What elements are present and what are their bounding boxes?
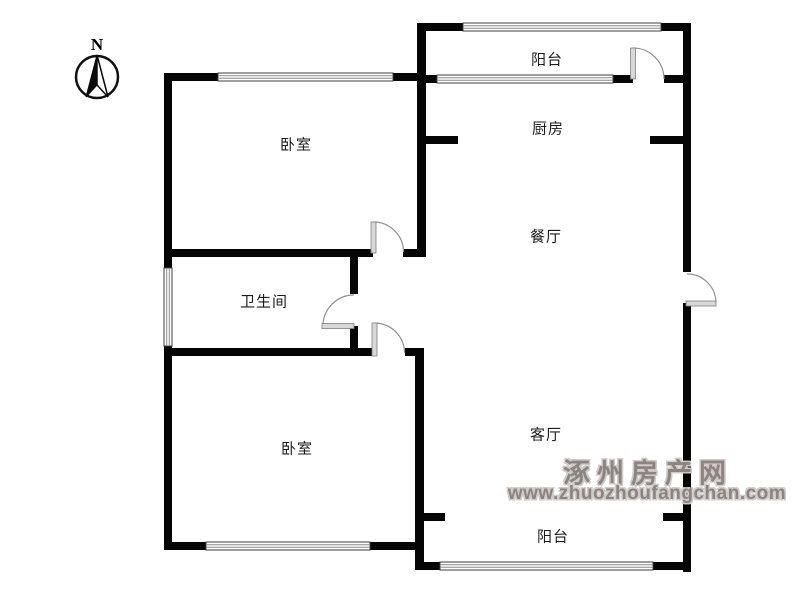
floorplan-drawing bbox=[0, 0, 800, 600]
wall bbox=[164, 73, 172, 268]
room-label-kitchen: 厨房 bbox=[532, 118, 564, 139]
wall bbox=[425, 75, 437, 83]
wall bbox=[683, 303, 691, 572]
doors bbox=[322, 48, 716, 356]
compass-north-label: N bbox=[91, 35, 103, 55]
balcony-door bbox=[631, 48, 665, 79]
room-label-bedroom-top: 卧室 bbox=[280, 134, 312, 155]
window bbox=[437, 75, 613, 83]
window bbox=[440, 562, 653, 570]
room-label-balcony-top: 阳台 bbox=[531, 49, 563, 70]
room-label-balcony-bottom: 阳台 bbox=[537, 526, 569, 547]
bedroom-top-door bbox=[371, 222, 404, 253]
window bbox=[463, 23, 661, 31]
wall bbox=[415, 348, 424, 570]
wall bbox=[613, 75, 633, 83]
compass-icon bbox=[76, 55, 118, 98]
bathroom-door bbox=[322, 295, 354, 329]
room-label-bathroom: 卫生间 bbox=[240, 291, 288, 312]
window bbox=[164, 268, 172, 346]
entry-door bbox=[686, 274, 716, 306]
room-label-living: 客厅 bbox=[530, 424, 562, 445]
room-label-dining: 餐厅 bbox=[530, 226, 562, 247]
wall bbox=[350, 326, 358, 348]
room-label-bedroom-bottom: 卧室 bbox=[281, 438, 313, 459]
wall bbox=[417, 23, 426, 257]
window bbox=[218, 73, 393, 81]
wall bbox=[164, 348, 375, 356]
wall bbox=[350, 257, 358, 294]
bedroom-bottom-door bbox=[372, 323, 405, 356]
window bbox=[206, 542, 370, 550]
wall bbox=[164, 73, 218, 81]
wall bbox=[164, 249, 373, 257]
watermark-url: www.zhuozhoufangchan.com bbox=[508, 483, 786, 505]
floorplan-canvas: N 阳台 厨房 卧室 餐厅 卫生间 客厅 卧室 阳台 涿州房产网 www.zhu… bbox=[0, 0, 800, 600]
wall bbox=[164, 346, 172, 550]
wall bbox=[683, 23, 691, 272]
